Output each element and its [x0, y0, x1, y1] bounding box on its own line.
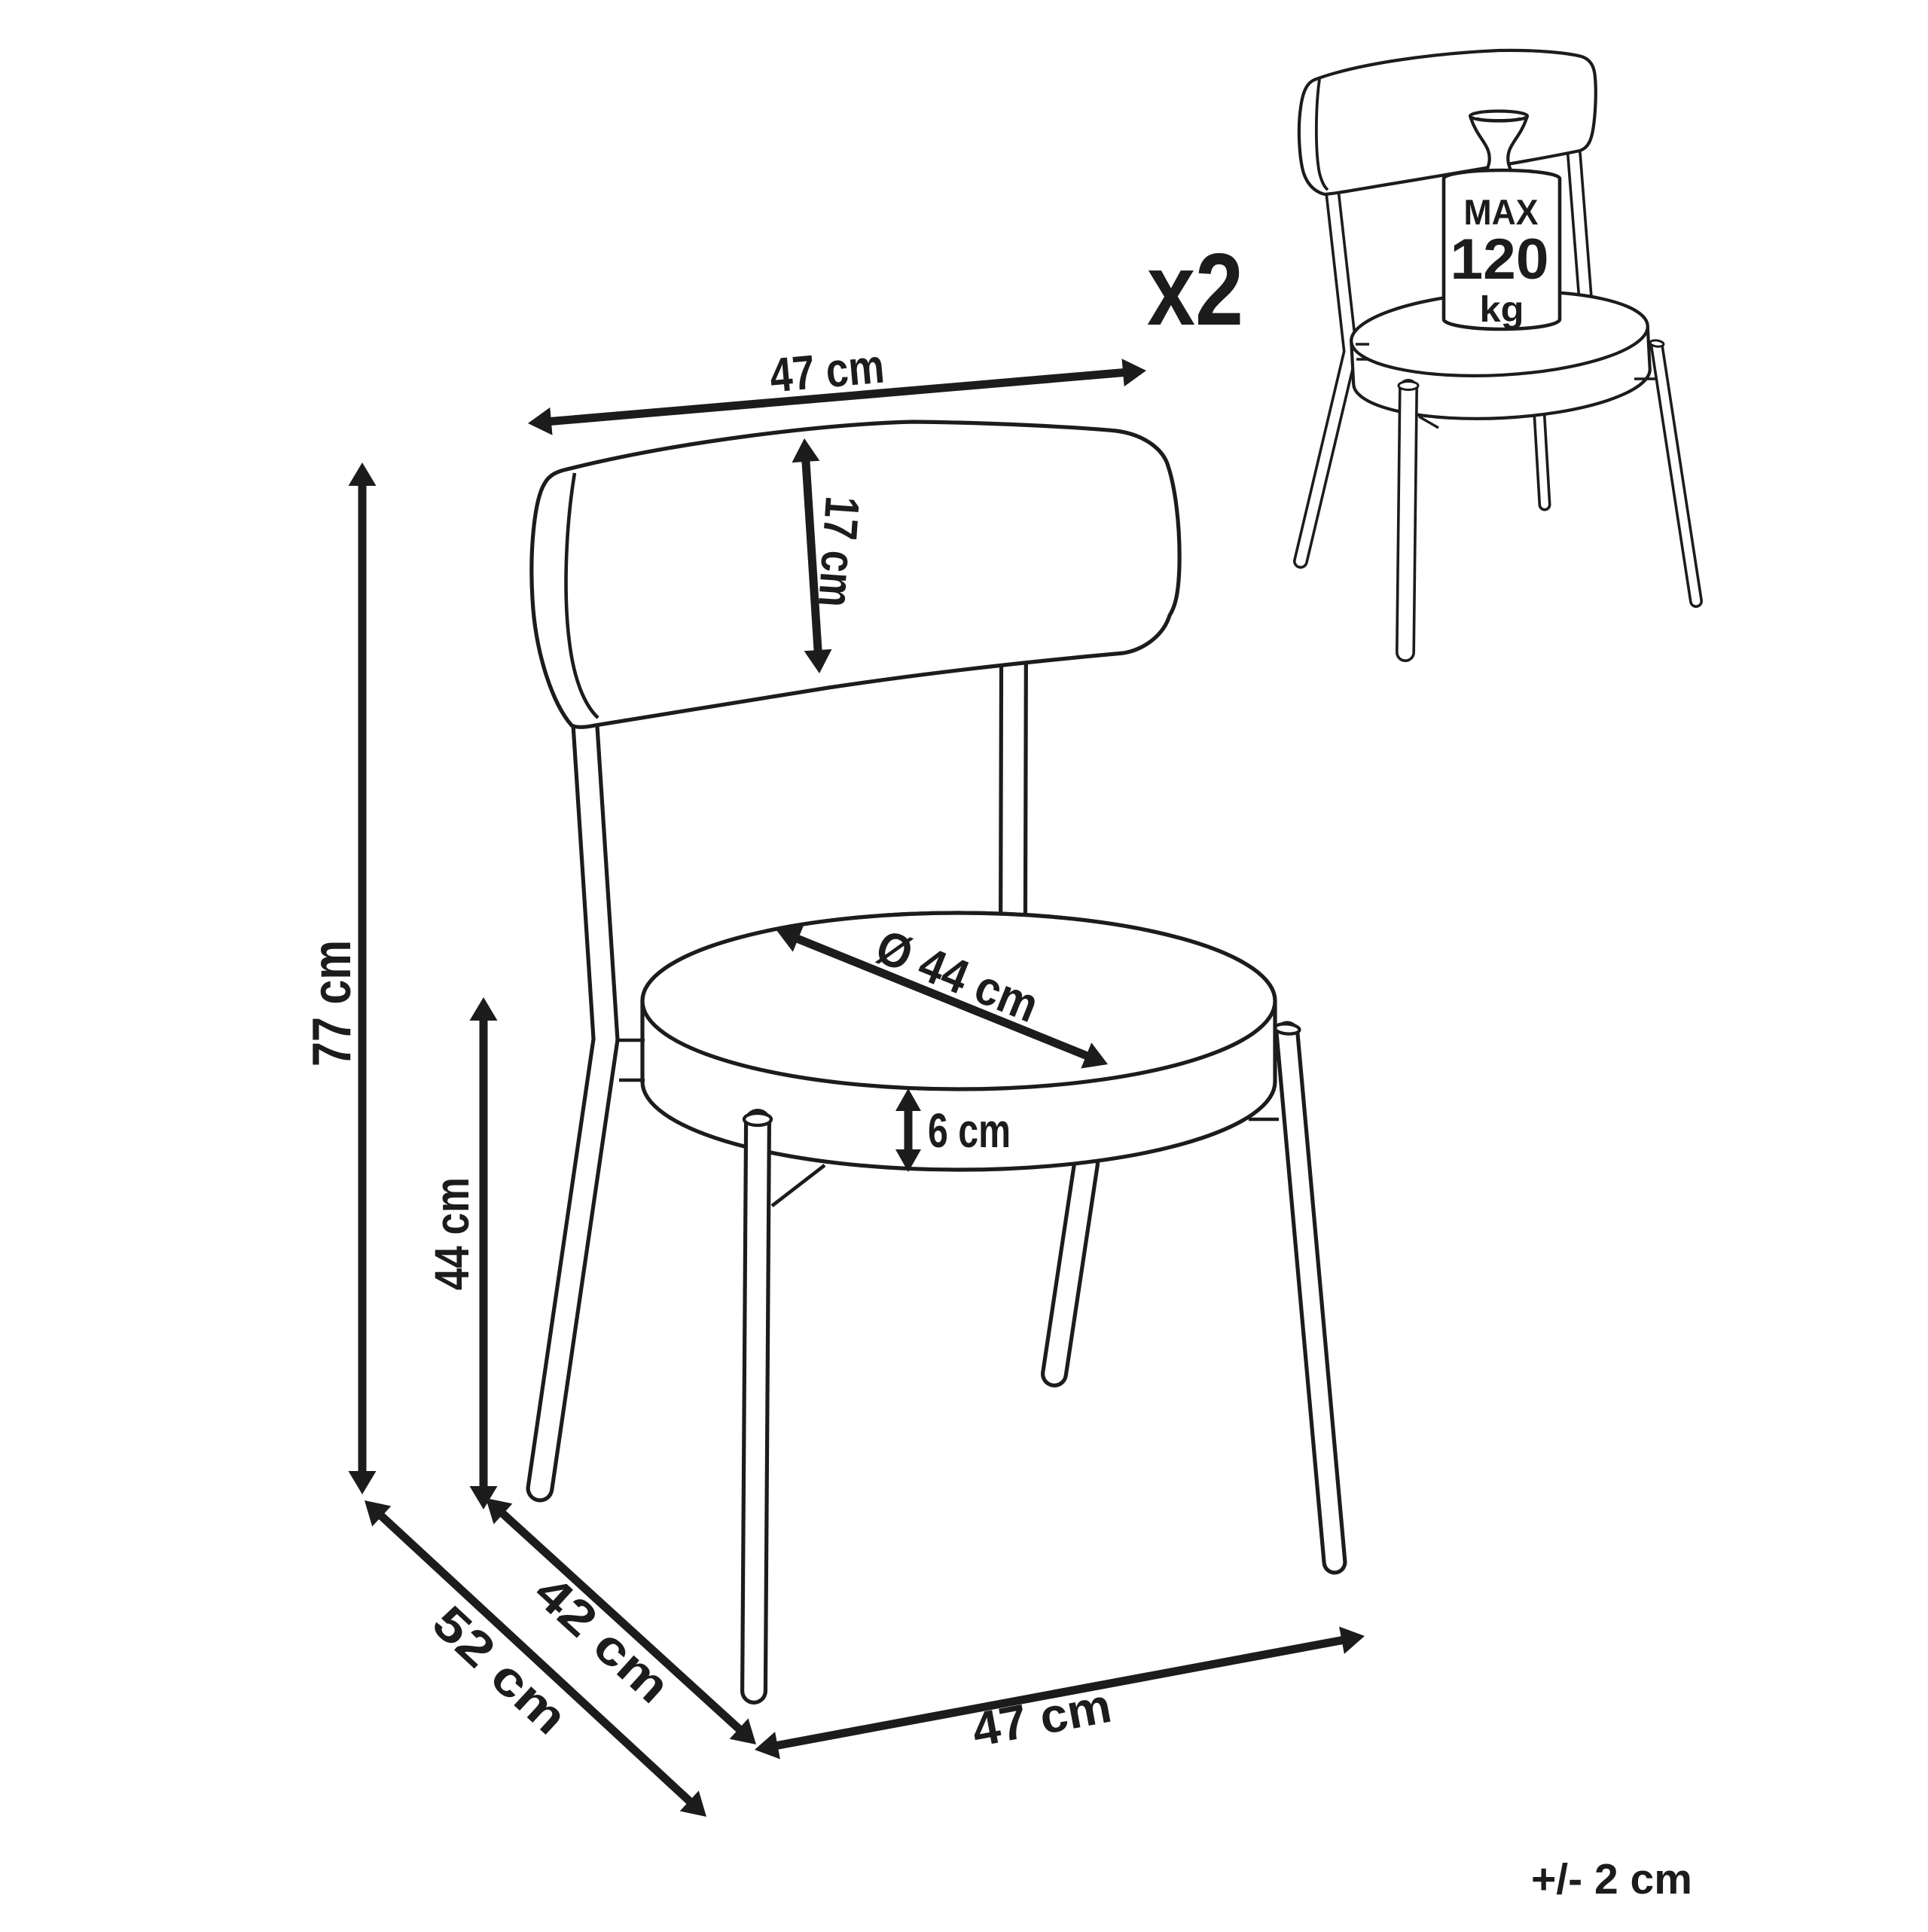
svg-text:17 cm: 17 cm — [808, 495, 870, 609]
svg-text:MAX: MAX — [1464, 192, 1539, 232]
svg-text:x2: x2 — [1147, 232, 1243, 346]
svg-text:120: 120 — [1451, 227, 1549, 291]
svg-text:77 cm: 77 cm — [302, 940, 362, 1067]
svg-text:47 cm: 47 cm — [767, 339, 886, 403]
svg-text:kg: kg — [1480, 290, 1524, 330]
svg-text:+/- 2 cm: +/- 2 cm — [1531, 1855, 1692, 1903]
svg-text:6 cm: 6 cm — [928, 1103, 1011, 1158]
svg-text:44 cm: 44 cm — [425, 1177, 479, 1290]
svg-text:47 cm: 47 cm — [968, 1678, 1115, 1757]
